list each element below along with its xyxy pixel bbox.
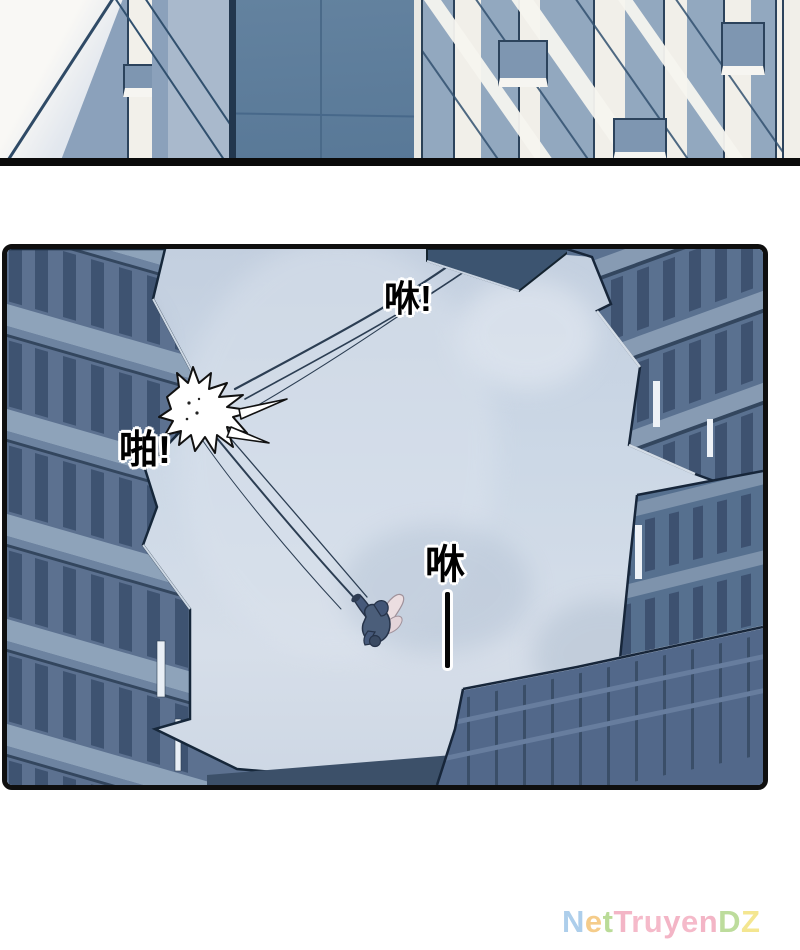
sfx-whoosh-falling: 咻: [425, 545, 465, 585]
facade-ledge: [498, 40, 548, 87]
facade-right-cluster: [423, 0, 800, 166]
watermark-letter: u: [644, 904, 663, 939]
watermark-letter: r: [631, 904, 644, 939]
main-panel: 咻! 啪! 咻: [2, 244, 768, 790]
comic-page: 咻! 啪! 咻 NetTruyenDZ: [0, 0, 800, 950]
watermark-letter: y: [663, 904, 681, 939]
watermark-letter: n: [699, 904, 718, 939]
facade-ledge: [721, 22, 765, 75]
facade-strip: [152, 0, 168, 166]
watermark-letter: t: [603, 904, 614, 939]
sfx-impact: 啪!: [119, 431, 171, 470]
watermark-letter: e: [681, 904, 699, 939]
watermark-letter: Z: [741, 904, 760, 939]
facade-ledge: [613, 118, 667, 161]
facade-pillar: [782, 0, 800, 166]
sfx-whoosh-top: 咻!: [384, 281, 432, 317]
sfx-elongation-dash: [445, 592, 450, 668]
top-panel: [0, 0, 800, 166]
facade-dark-edge: [229, 0, 236, 166]
facade-slab: [168, 0, 230, 166]
watermark-letter: D: [718, 904, 741, 939]
watermark: NetTruyenDZ: [562, 905, 760, 939]
facade-seam: [320, 0, 322, 166]
panel-border-bottom: [0, 158, 800, 166]
facade-light-edge: [414, 0, 421, 166]
watermark-letter: T: [613, 904, 631, 939]
facade-main-face: [236, 0, 414, 166]
watermark-letter: N: [562, 904, 585, 939]
panel-illustration: [7, 249, 763, 785]
watermark-letter: e: [585, 904, 603, 939]
